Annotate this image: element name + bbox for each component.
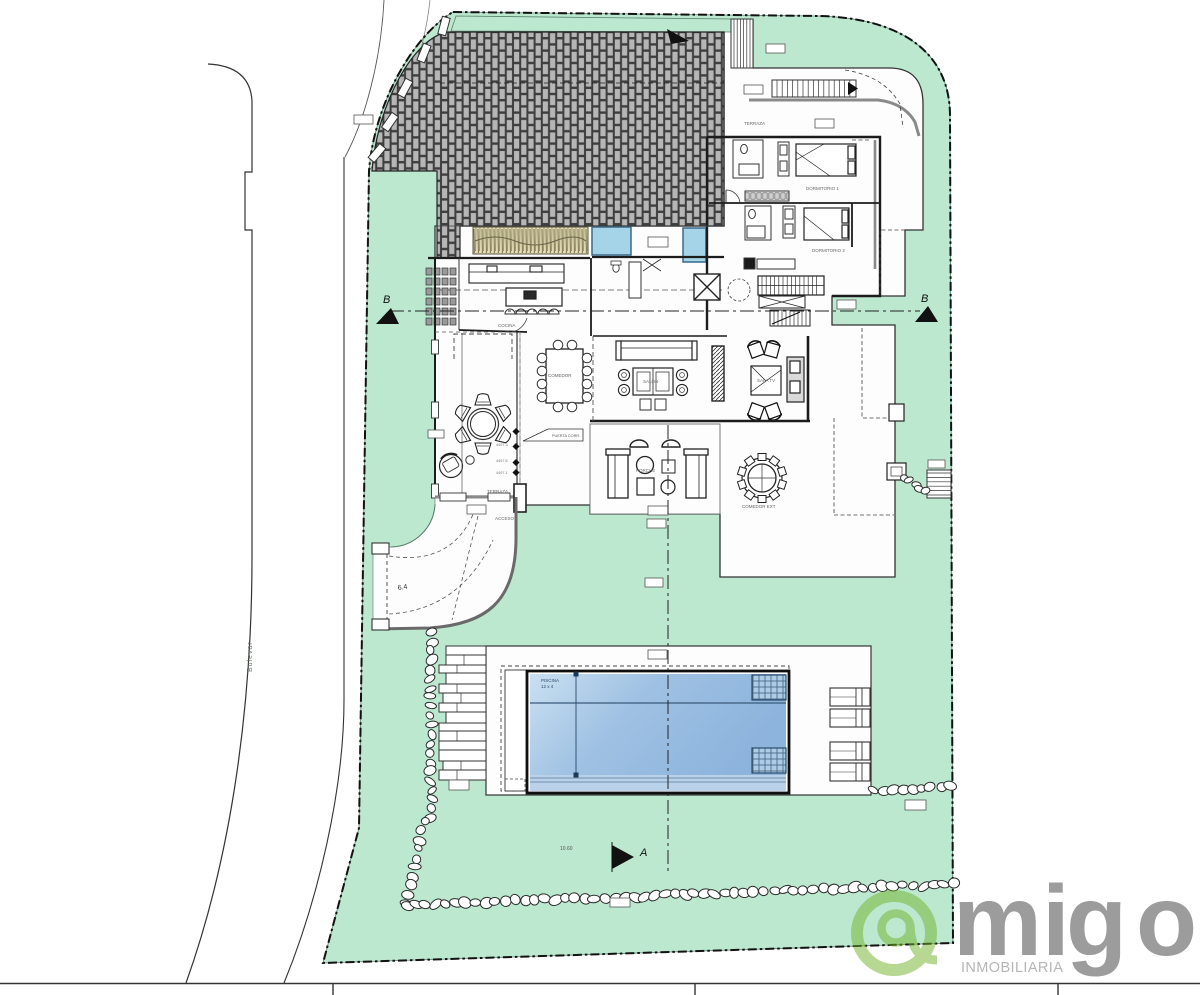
- svg-text:PUERTA CORR.: PUERTA CORR.: [552, 434, 580, 438]
- svg-text:4497.6: 4497.6: [496, 459, 508, 463]
- svg-text:PISCINA: PISCINA: [541, 678, 559, 683]
- svg-text:B: B: [921, 293, 928, 305]
- svg-text:DORMITORIO 1: DORMITORIO 1: [806, 186, 839, 191]
- svg-text:6.4: 6.4: [397, 584, 408, 592]
- svg-text:INMOBILIARIA: INMOBILIARIA: [961, 960, 1063, 976]
- svg-text:COMEDOR EXT: COMEDOR EXT: [742, 504, 776, 509]
- svg-text:SALA TV: SALA TV: [757, 378, 775, 383]
- svg-text:PORCHE: PORCHE: [636, 468, 655, 473]
- svg-text:ACCESO: ACCESO: [495, 516, 515, 521]
- svg-text:A: A: [639, 847, 647, 859]
- svg-text:4497.1: 4497.1: [496, 471, 508, 475]
- svg-text:4497.3: 4497.3: [496, 443, 508, 447]
- svg-text:B: B: [383, 294, 390, 306]
- svg-text:DORMITORIO 2: DORMITORIO 2: [812, 248, 845, 253]
- svg-text:10.60: 10.60: [560, 846, 573, 852]
- svg-text:COMEDOR: COMEDOR: [548, 373, 572, 378]
- svg-text:Bulevar: Bulevar: [247, 641, 254, 672]
- svg-text:COCINA: COCINA: [498, 323, 516, 328]
- svg-text:TERRAZA: TERRAZA: [744, 121, 765, 126]
- svg-text:SALON: SALON: [643, 379, 658, 384]
- svg-text:12 x 4: 12 x 4: [541, 684, 554, 689]
- svg-text:TERRAZA: TERRAZA: [487, 489, 508, 494]
